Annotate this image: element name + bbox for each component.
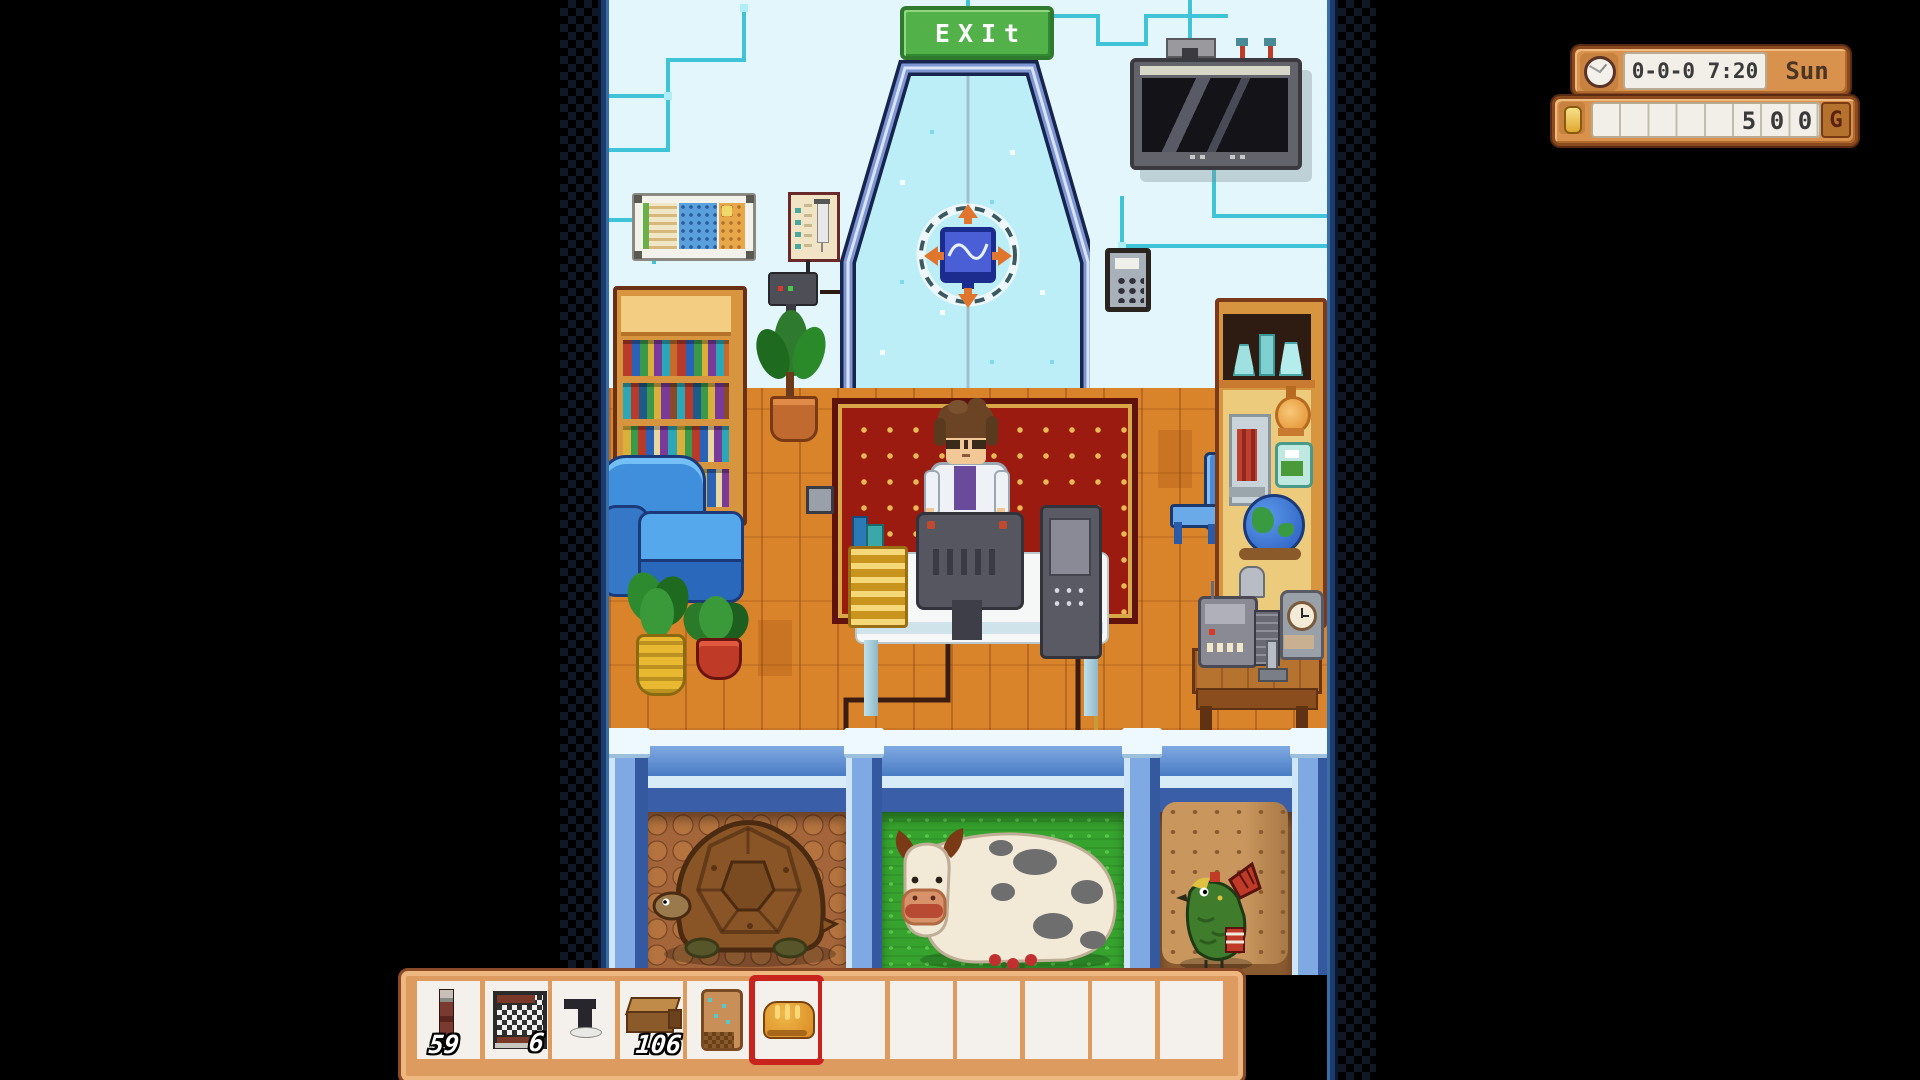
pen-pillar (846, 728, 882, 975)
money-digit: 0 (1763, 107, 1791, 135)
money-dig: 0 (1791, 107, 1819, 135)
pen-pillar (1124, 728, 1160, 975)
clock-icon (1580, 53, 1618, 91)
hotbar-slot-4[interactable]: 106 (620, 981, 683, 1059)
date-time-text: 0-0-0 7:20 (1632, 59, 1758, 83)
money-panel[interactable]: 5 0 0 G (1552, 96, 1858, 146)
spotted-cow[interactable] (885, 820, 1121, 972)
time-panel[interactable]: 0-0-0 7:20 Sun (1572, 46, 1850, 96)
computer-monitor[interactable] (916, 512, 1024, 610)
paper-tray (848, 546, 908, 628)
game-viewport[interactable]: EXIt (598, 0, 1338, 1080)
pen-pillar (1292, 728, 1327, 975)
pc-tower[interactable] (1040, 505, 1102, 659)
coin-icon (1559, 102, 1585, 134)
currency-label: G (1829, 108, 1842, 133)
inventory-hotbar[interactable]: 59 6 106 (398, 968, 1246, 1080)
right-checker-edge (1338, 0, 1376, 1080)
hotbar-slot-10[interactable] (1025, 981, 1088, 1059)
money-cells: 5 0 0 (1591, 102, 1821, 138)
viewport-right-border (1327, 0, 1338, 1080)
viewport-left-border (598, 0, 609, 1080)
bread-item (763, 1001, 815, 1039)
hotbar-slot-2[interactable]: 6 (485, 981, 548, 1059)
pen-pillar (609, 728, 648, 975)
hotbar-slot-6-selected[interactable] (755, 981, 818, 1059)
tortoise[interactable] (650, 798, 846, 970)
day-of-week: Sun (1785, 57, 1828, 85)
jungle-chicken[interactable] (1168, 858, 1268, 972)
hotbar-slot-12[interactable] (1160, 981, 1223, 1059)
hotbar-slot-3[interactable] (552, 981, 615, 1059)
hotbar-slot-9[interactable] (957, 981, 1020, 1059)
game-screen: EXIt (0, 0, 1920, 1080)
money-digit: 5 (1735, 107, 1763, 135)
seed-pouch-item (701, 989, 743, 1051)
left-checker-edge (560, 0, 598, 1080)
hotbar-slot-5[interactable] (687, 981, 750, 1059)
character-glasses (946, 440, 986, 449)
hotbar-slot-7[interactable] (822, 981, 885, 1059)
hotbar-slot-11[interactable] (1092, 981, 1155, 1059)
currency-badge: G (1821, 102, 1851, 138)
hotbar-slot-8[interactable] (890, 981, 953, 1059)
hotbar-slot-1[interactable]: 59 (417, 981, 480, 1059)
